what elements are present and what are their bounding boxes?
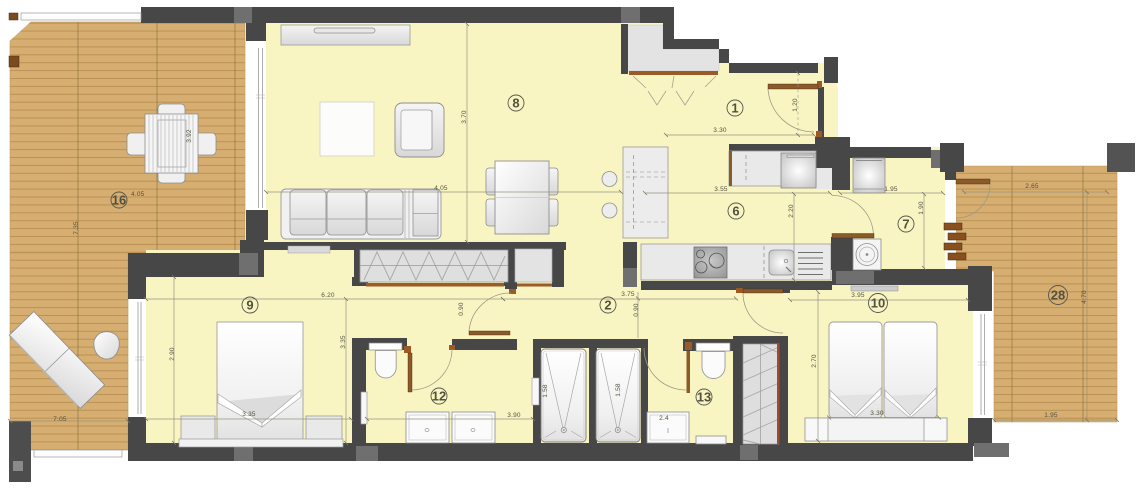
svg-text:10: 10 <box>871 296 885 311</box>
svg-text:1.20: 1.20 <box>792 98 799 112</box>
svg-text:4.05: 4.05 <box>434 185 448 192</box>
svg-text:3.35: 3.35 <box>242 411 256 418</box>
svg-text:12: 12 <box>432 389 446 404</box>
svg-text:7.35: 7.35 <box>73 221 80 235</box>
svg-text:3.55: 3.55 <box>714 186 728 193</box>
svg-text:7.05: 7.05 <box>53 416 67 423</box>
svg-text:3.30: 3.30 <box>713 127 727 134</box>
svg-text:2.4: 2.4 <box>659 415 669 422</box>
svg-text:3.95: 3.95 <box>851 292 865 299</box>
svg-text:3.30: 3.30 <box>870 410 884 417</box>
svg-text:3.70: 3.70 <box>461 110 468 124</box>
svg-text:1.90: 1.90 <box>918 201 925 215</box>
svg-text:2: 2 <box>604 298 611 313</box>
svg-text:6: 6 <box>732 204 739 219</box>
svg-text:1.95: 1.95 <box>884 186 898 193</box>
svg-text:28: 28 <box>1051 288 1065 303</box>
svg-text:4.70: 4.70 <box>1081 290 1088 304</box>
svg-text:16: 16 <box>112 193 126 208</box>
svg-text:3.75: 3.75 <box>621 291 635 298</box>
svg-text:6.20: 6.20 <box>321 292 335 299</box>
svg-text:7: 7 <box>902 217 909 232</box>
svg-text:9: 9 <box>246 298 253 313</box>
svg-text:3.90: 3.90 <box>507 412 521 419</box>
svg-text:2.90: 2.90 <box>169 347 176 361</box>
svg-text:1.58: 1.58 <box>615 383 622 397</box>
svg-text:2.65: 2.65 <box>1025 183 1039 190</box>
svg-text:1: 1 <box>731 101 738 116</box>
svg-text:1.58: 1.58 <box>542 384 549 398</box>
svg-text:8: 8 <box>512 96 519 111</box>
svg-text:0.90: 0.90 <box>633 303 640 317</box>
svg-text:13: 13 <box>697 390 711 405</box>
svg-text:2.20: 2.20 <box>788 204 795 218</box>
svg-text:2.70: 2.70 <box>811 354 818 368</box>
svg-text:0.90: 0.90 <box>458 302 465 316</box>
svg-text:1.95: 1.95 <box>1044 412 1058 419</box>
svg-text:3.35: 3.35 <box>340 335 347 349</box>
svg-text:4.05: 4.05 <box>131 191 145 198</box>
svg-text:3.92: 3.92 <box>186 129 193 143</box>
